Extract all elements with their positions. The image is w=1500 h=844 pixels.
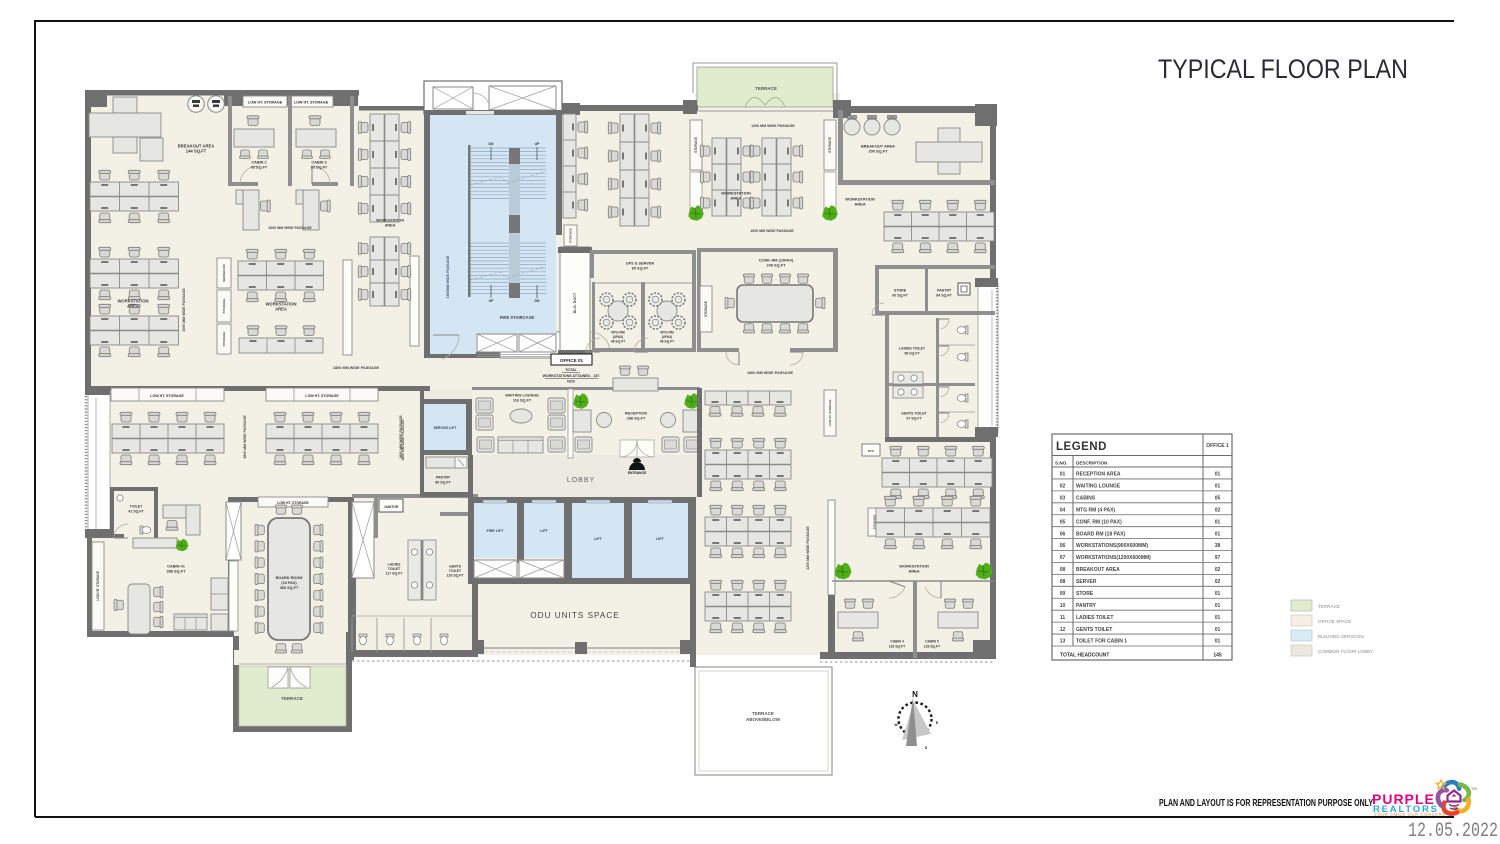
svg-text:UP: UP [535, 142, 540, 146]
svg-text:RECEPTION: RECEPTION [625, 412, 647, 416]
svg-text:12.05.2022: 12.05.2022 [1408, 820, 1498, 843]
svg-text:LOW HT. STORAGE: LOW HT. STORAGE [96, 571, 100, 601]
svg-text:GENTS TOILET: GENTS TOILET [901, 412, 927, 416]
svg-text:1000 MM WIDE PASSAGE: 1000 MM WIDE PASSAGE [182, 288, 186, 332]
svg-text:AREA: AREA [275, 307, 287, 312]
svg-text:DESCRIPTION: DESCRIPTION [1076, 461, 1108, 466]
svg-text:BOARD RM (18 PAX): BOARD RM (18 PAX) [1076, 531, 1125, 537]
svg-text:97 SQ.FT: 97 SQ.FT [906, 416, 922, 420]
svg-text:09: 09 [1060, 591, 1066, 597]
svg-text:116 SQ.FT: 116 SQ.FT [513, 399, 532, 403]
svg-text:02: 02 [1215, 507, 1221, 513]
svg-text:STORAGE: STORAGE [222, 299, 226, 314]
svg-text:97: 97 [1215, 555, 1221, 561]
svg-text:06: 06 [1060, 531, 1066, 537]
svg-text:48 SQ.FT: 48 SQ.FT [611, 340, 625, 344]
svg-text:03: 03 [1060, 496, 1066, 502]
svg-text:04: 04 [1060, 507, 1066, 513]
svg-text:1800 MM WIDE PASSAGE: 1800 MM WIDE PASSAGE [243, 415, 247, 459]
svg-text:STORAGE: STORAGE [222, 332, 226, 347]
svg-text:LADIES: LADIES [388, 562, 402, 566]
svg-text:98 SQ.FT: 98 SQ.FT [904, 351, 920, 355]
svg-text:1800 MM WIDE PASSAGE: 1800 MM WIDE PASSAGE [747, 371, 794, 375]
svg-text:STORE: STORE [1076, 591, 1094, 597]
svg-text:1800 MM WIDE PASSAGE: 1800 MM WIDE PASSAGE [333, 366, 380, 370]
svg-text:PANTRY: PANTRY [937, 289, 952, 293]
svg-text:AREA: AREA [908, 569, 919, 574]
svg-text:365 SQ.FT: 365 SQ.FT [280, 586, 299, 590]
svg-text:248 SQ.FT: 248 SQ.FT [766, 263, 786, 268]
svg-text:01: 01 [1060, 472, 1066, 478]
svg-text:93 SQ.FT: 93 SQ.FT [311, 166, 328, 170]
svg-text:SERVER RM: SERVER RM [222, 264, 226, 282]
svg-text:S.NO.: S.NO. [1055, 461, 1068, 466]
svg-text:02: 02 [1060, 484, 1066, 490]
svg-text:TOILET: TOILET [388, 567, 401, 571]
svg-text:GENTS: GENTS [449, 564, 462, 568]
svg-text:WAITING LOUNGE: WAITING LOUNGE [1076, 484, 1121, 490]
svg-text:07: 07 [1060, 555, 1066, 561]
svg-text:05: 05 [1215, 496, 1221, 502]
svg-text:ENTRANCE: ENTRANCE [628, 471, 647, 475]
svg-text:13: 13 [1060, 639, 1066, 645]
svg-text:1200 MM WIDE PASSAGE: 1200 MM WIDE PASSAGE [751, 124, 795, 128]
svg-text:AREA: AREA [385, 224, 396, 228]
svg-text:DN: DN [489, 142, 494, 146]
svg-text:PANTRY: PANTRY [1076, 603, 1097, 609]
svg-text:BREAKOUT AREA: BREAKOUT AREA [178, 143, 215, 148]
svg-text:WORKSTATION: WORKSTATION [265, 301, 296, 306]
svg-text:TOILET FOR CABIN 1: TOILET FOR CABIN 1 [1076, 639, 1127, 645]
svg-text:05: 05 [1060, 519, 1066, 525]
svg-text:01: 01 [1215, 531, 1221, 537]
svg-text:117 SQ.FT: 117 SQ.FT [386, 572, 404, 576]
svg-text:PANTRY: PANTRY [436, 476, 451, 480]
svg-text:02: 02 [1215, 567, 1221, 573]
svg-text:01: 01 [1215, 519, 1221, 525]
svg-text:TOILET: TOILET [130, 505, 144, 509]
svg-text:WORKSTATIONS(1200X600MM): WORKSTATIONS(1200X600MM) [1076, 555, 1151, 561]
svg-text:38: 38 [1215, 543, 1221, 549]
svg-text:LIFT: LIFT [656, 537, 664, 541]
svg-text:CONF. RM (10 PAX): CONF. RM (10 PAX) [1076, 519, 1122, 525]
svg-text:TOTAL: TOTAL [565, 368, 577, 372]
svg-text:144 SQ.FT: 144 SQ.FT [186, 149, 207, 154]
svg-text:LOW HT. STORAGE: LOW HT. STORAGE [277, 501, 309, 505]
svg-text:LIFT: LIFT [540, 529, 548, 533]
svg-text:BUILDING SERVICES: BUILDING SERVICES [1318, 634, 1364, 639]
svg-text:DN: DN [535, 299, 540, 303]
svg-text:60 SQ.FT: 60 SQ.FT [892, 293, 908, 297]
svg-text:1200 MM WIDE PASSAGE: 1200 MM WIDE PASSAGE [806, 526, 810, 570]
svg-text:CABIN 5: CABIN 5 [925, 640, 939, 644]
svg-text:41 SQ.FT: 41 SQ.FT [128, 509, 144, 513]
svg-text:TM: TM [1471, 786, 1477, 791]
svg-text:UPS & SERVER: UPS & SERVER [626, 262, 654, 266]
svg-text:01: 01 [1215, 639, 1221, 645]
svg-text:MTG RM: MTG RM [611, 331, 625, 335]
svg-text:STORAGE: STORAGE [694, 137, 698, 153]
svg-text:118 SQ.FT: 118 SQ.FT [889, 644, 906, 648]
svg-text:LOW HT. STORAGE: LOW HT. STORAGE [294, 101, 329, 105]
svg-text:1600 MM WIDE PASSAGE: 1600 MM WIDE PASSAGE [268, 226, 312, 230]
svg-text:SERVICE LIFT: SERVICE LIFT [434, 426, 458, 430]
svg-text:AREA: AREA [730, 196, 741, 201]
svg-text:STORAGE: STORAGE [704, 301, 708, 317]
svg-text:118 SQ.FT: 118 SQ.FT [924, 644, 941, 648]
svg-text:1800 MM WIDE PASSAGE: 1800 MM WIDE PASSAGE [401, 419, 405, 461]
svg-text:01: 01 [1215, 615, 1221, 621]
svg-text:(4PAX): (4PAX) [613, 335, 624, 339]
svg-text:1000 MM WIDE PASSAGE: 1000 MM WIDE PASSAGE [750, 229, 794, 233]
svg-text:01: 01 [1215, 484, 1221, 490]
svg-text:12: 12 [1060, 627, 1066, 633]
svg-text:01: 01 [1215, 627, 1221, 633]
svg-text:WAITING LOUNGE: WAITING LOUNGE [505, 394, 539, 398]
svg-text:LIFT: LIFT [594, 537, 602, 541]
svg-text:48 SQ.FT: 48 SQ.FT [660, 340, 674, 344]
svg-text:UP: UP [489, 299, 494, 303]
svg-text:COMMON FLOOR LOBBY: COMMON FLOOR LOBBY [1318, 649, 1373, 654]
svg-text:WORKSTATION: WORKSTATION [376, 219, 404, 223]
svg-text:FIRE STAIRCASE: FIRE STAIRCASE [500, 315, 535, 320]
svg-text:11: 11 [1060, 615, 1066, 621]
svg-text:BLG. DUCT: BLG. DUCT [573, 292, 577, 313]
svg-text:ETC: ETC [868, 449, 875, 453]
svg-text:LEGEND: LEGEND [1056, 441, 1107, 453]
svg-text:NOS: NOS [567, 380, 575, 384]
svg-text:1500MM WIDE PASSAGE: 1500MM WIDE PASSAGE [446, 255, 450, 298]
svg-text:WORKSTATIONS(900X600MM): WORKSTATIONS(900X600MM) [1076, 543, 1148, 549]
svg-text:STORAGE: STORAGE [828, 137, 832, 153]
svg-text:CABIN 2: CABIN 2 [251, 161, 266, 165]
svg-text:N: N [912, 690, 918, 699]
svg-text:01: 01 [1215, 472, 1221, 478]
svg-text:FIRE LIFT: FIRE LIFT [487, 529, 505, 533]
svg-text:93 SQ.FT: 93 SQ.FT [251, 166, 268, 170]
svg-text:LOW HT. STORAGE: LOW HT. STORAGE [248, 101, 283, 105]
svg-text:BREAKOUT AREA: BREAKOUT AREA [1076, 567, 1120, 573]
svg-text:(18 PAX): (18 PAX) [281, 581, 297, 585]
svg-text:84 SQ.FT: 84 SQ.FT [936, 293, 952, 297]
svg-text:TERRACE: TERRACE [1318, 604, 1340, 609]
svg-text:STORAGE: STORAGE [569, 228, 573, 243]
svg-text:01: 01 [1215, 603, 1221, 609]
svg-text:ODU UNITS SPACE: ODU UNITS SPACE [530, 611, 619, 620]
svg-text:MTG RM (4 PAX): MTG RM (4 PAX) [1076, 507, 1115, 513]
svg-text:06: 06 [1060, 543, 1066, 549]
svg-text:BOARD ROOM: BOARD ROOM [276, 576, 303, 580]
svg-text:CABIN 4: CABIN 4 [890, 640, 904, 644]
svg-text:200 SQ.FT: 200 SQ.FT [868, 149, 888, 154]
svg-text:TERRACE: TERRACE [281, 696, 303, 701]
svg-text:LOW HT. STORAGE: LOW HT. STORAGE [828, 399, 832, 426]
svg-text:GENTS TOILET: GENTS TOILET [1076, 627, 1112, 633]
svg-text:TOTAL HEADCOUNT: TOTAL HEADCOUNT [1060, 653, 1109, 659]
svg-text:02: 02 [1215, 579, 1221, 585]
svg-text:TERRACE: TERRACE [755, 86, 777, 91]
svg-text:01: 01 [1215, 591, 1221, 597]
svg-text:388 SQ.FT: 388 SQ.FT [166, 569, 186, 574]
svg-text:YOUR SMILE OUR CONCERN: YOUR SMILE OUR CONCERN [1374, 812, 1446, 817]
svg-text:288 SQ.FT: 288 SQ.FT [627, 417, 646, 421]
svg-text:STORE: STORE [894, 289, 907, 293]
svg-text:145: 145 [1213, 653, 1222, 659]
svg-text:LADIES TOILET: LADIES TOILET [1076, 615, 1113, 621]
svg-text:(4PAX): (4PAX) [662, 335, 673, 339]
svg-text:OFFICE 01: OFFICE 01 [560, 358, 584, 363]
svg-text:TYPICAL FLOOR PLAN: TYPICAL FLOOR PLAN [1158, 54, 1408, 84]
svg-text:TERRACE: TERRACE [752, 711, 774, 716]
svg-text:TOILET: TOILET [449, 569, 462, 573]
svg-text:PLAN AND LAYOUT IS FOR REPRESE: PLAN AND LAYOUT IS FOR REPRESENTATION PU… [1159, 797, 1373, 809]
svg-text:LADIES TOILET: LADIES TOILET [899, 347, 926, 351]
svg-text:WORKSTATIONS ATTAINED - 157: WORKSTATIONS ATTAINED - 157 [543, 374, 600, 378]
svg-text:AREA: AREA [127, 304, 139, 309]
svg-text:80 SQ.FT: 80 SQ.FT [435, 480, 451, 484]
svg-text:MTG RM: MTG RM [660, 331, 674, 335]
svg-text:CABINS: CABINS [1076, 496, 1096, 502]
svg-text:JANITOR: JANITOR [384, 505, 399, 509]
svg-text:65 SQ.FT: 65 SQ.FT [632, 267, 649, 271]
svg-text:RECEPTION AREA: RECEPTION AREA [1076, 472, 1121, 478]
svg-text:126 SQ.FT: 126 SQ.FT [446, 574, 464, 578]
svg-text:CABIN 3: CABIN 3 [311, 161, 326, 165]
svg-text:LOBBY: LOBBY [567, 477, 595, 484]
svg-text:LOW HT. STORAGE: LOW HT. STORAGE [150, 394, 184, 398]
svg-text:10: 10 [1060, 603, 1066, 609]
svg-text:LOW HT. STORAGE: LOW HT. STORAGE [305, 394, 339, 398]
svg-text:ABOVE/BELOW: ABOVE/BELOW [746, 717, 781, 722]
svg-text:08: 08 [1060, 579, 1066, 585]
svg-text:SERVER: SERVER [1076, 579, 1097, 585]
svg-text:08: 08 [1060, 567, 1066, 573]
svg-text:OFFICE 1: OFFICE 1 [1206, 443, 1229, 449]
svg-text:WORKSTATION: WORKSTATION [117, 298, 148, 303]
svg-text:AREA: AREA [854, 202, 865, 207]
svg-text:OFFICE SPACE: OFFICE SPACE [1318, 619, 1351, 624]
